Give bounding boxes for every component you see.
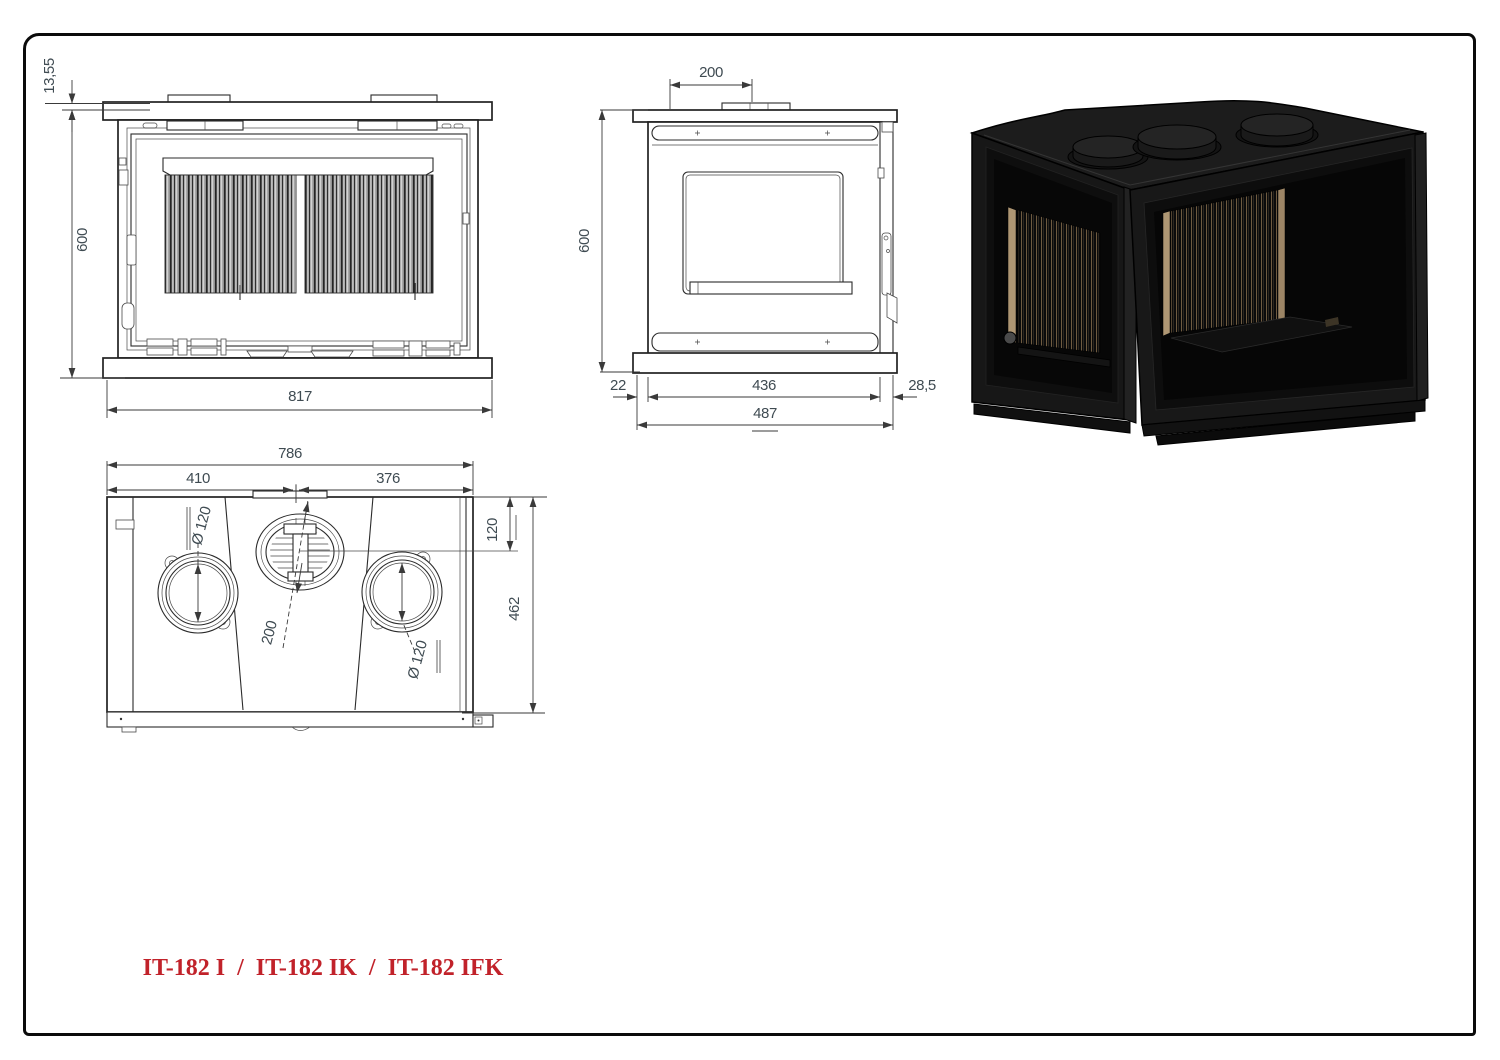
perspective-render xyxy=(960,95,1465,450)
dim-side-total-depth: 487 xyxy=(753,405,777,422)
front-view-body xyxy=(103,95,492,378)
dim-top-left-span: 410 xyxy=(186,470,210,487)
dim-side-height: 600 xyxy=(576,229,593,253)
dim-side-front-gap: 22 xyxy=(610,377,626,394)
top-view-drawing: 786 410 376 Ø 120 Ø 120 200 120 xyxy=(85,445,560,745)
dim-front-height: 600 xyxy=(74,228,91,252)
model-line-1: IT-182 I / IT-182 IK / IT-182 IFK xyxy=(118,948,528,989)
dim-front-top-gap: 13,55 xyxy=(41,58,58,94)
top-view-body xyxy=(107,484,518,732)
dim-flue-center-offset: 120 xyxy=(484,518,501,542)
model-designations: IT-182 I / IT-182 IK / IT-182 IFK IT-182… xyxy=(118,866,528,1060)
dim-top-depth: 462 xyxy=(506,597,523,621)
dim-top-right-span: 376 xyxy=(376,470,400,487)
stove-3d-body xyxy=(972,101,1428,445)
dim-side-rear-gap: 28,5 xyxy=(908,377,936,394)
dim-side-body-depth: 436 xyxy=(752,377,776,394)
side-view-body xyxy=(633,103,897,373)
side-view-drawing: 200 600 22 436 28,5 487 xyxy=(575,55,970,440)
dim-front-width: 817 xyxy=(288,388,312,405)
technical-drawing-sheet: 13,55 600 817 xyxy=(0,0,1500,1060)
dim-side-flue-offset: 200 xyxy=(699,64,723,81)
dim-top-total-width: 786 xyxy=(278,445,302,462)
front-view-drawing: 13,55 600 817 xyxy=(30,50,540,440)
